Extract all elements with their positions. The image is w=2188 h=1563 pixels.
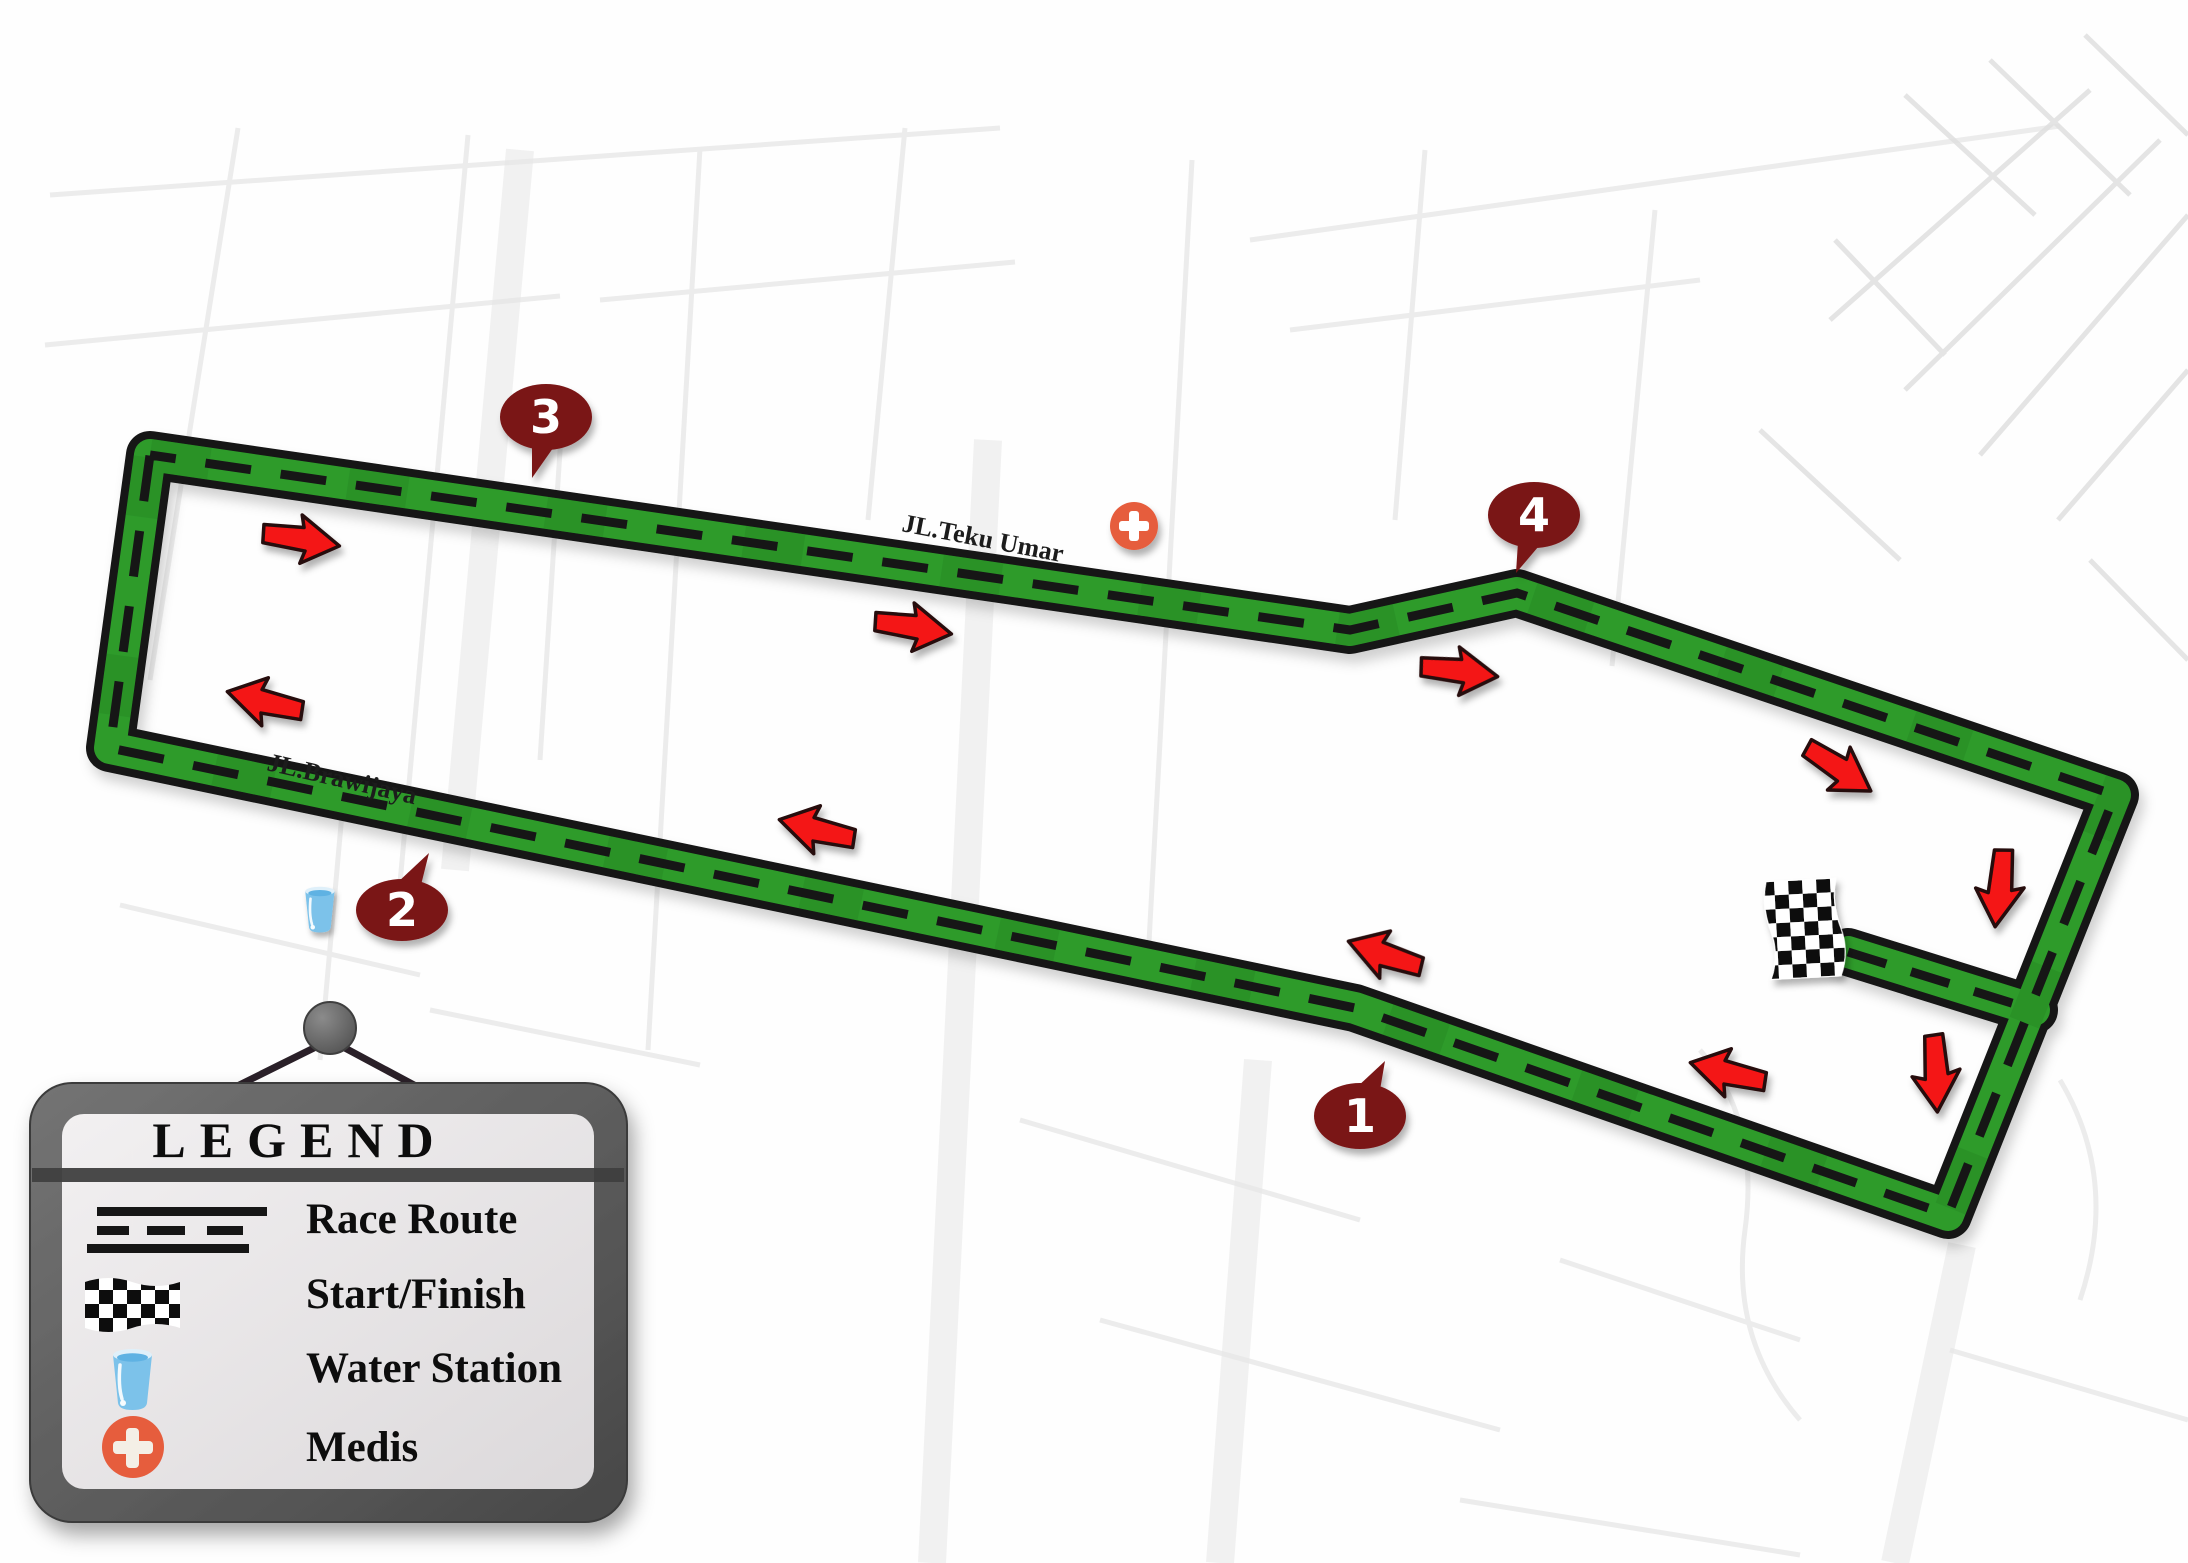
legend-title: LEGEND [152, 1112, 447, 1168]
water-cup-icon [305, 887, 334, 933]
legend-label-race-route: Race Route [306, 1196, 517, 1243]
checkered-flag-icon [1763, 878, 1846, 980]
race-route-icon [87, 1207, 267, 1253]
checkered-flag-icon [85, 1278, 180, 1332]
svg-text:4: 4 [1518, 488, 1550, 542]
legend-label-water-station: Water Station [306, 1345, 562, 1392]
legend-label-medis: Medis [306, 1424, 418, 1471]
svg-text:3: 3 [530, 390, 562, 444]
water-cup-icon [113, 1349, 152, 1410]
race-route-map-page: JL.Teku Umar JL.Brawijaya 1 [0, 0, 2188, 1563]
race-route-map: JL.Teku Umar JL.Brawijaya 1 [0, 0, 2188, 1563]
medic-cross-icon [102, 1416, 164, 1478]
legend-label-start-finish: Start/Finish [306, 1271, 526, 1318]
medic-cross-icon [1110, 502, 1158, 550]
hanging-pin [304, 1002, 356, 1054]
legend-divider [32, 1168, 624, 1182]
svg-text:1: 1 [1344, 1089, 1376, 1143]
svg-text:2: 2 [386, 883, 418, 937]
